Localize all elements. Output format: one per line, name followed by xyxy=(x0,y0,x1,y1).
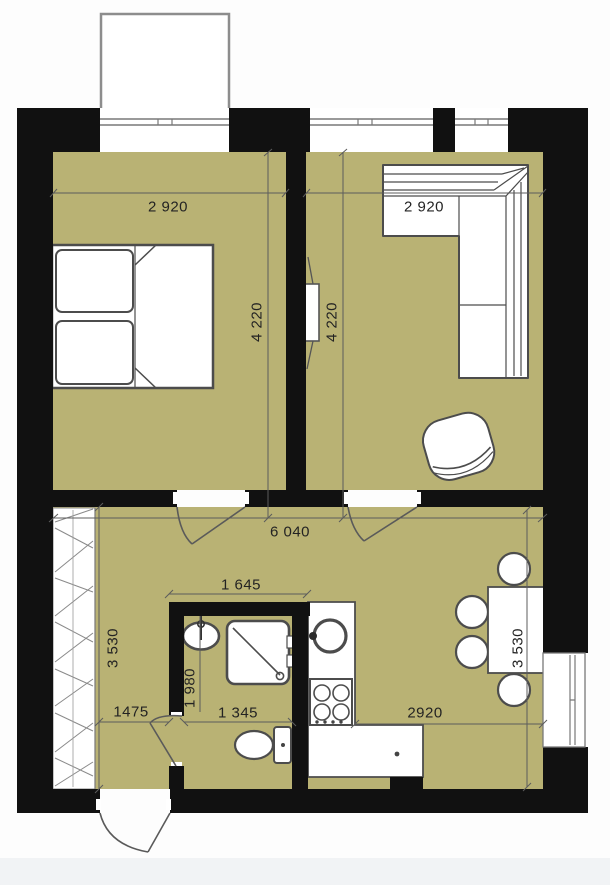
dim-bedroom-depth: 4 220 xyxy=(250,302,265,342)
entrance-door xyxy=(100,813,170,852)
dim-bathroom-depth: 1 980 xyxy=(183,668,198,708)
wardrobe xyxy=(53,508,95,789)
chair xyxy=(498,553,530,585)
chair xyxy=(456,636,488,668)
dim-hall-depth: 3 530 xyxy=(106,628,121,668)
double-bed xyxy=(52,245,213,388)
floor-plan: 2 920 2 920 4 220 4 220 6 040 3 530 1475… xyxy=(0,0,610,885)
kitchen-window xyxy=(543,653,585,747)
dim-kitchen-depth: 3 530 xyxy=(511,628,526,668)
toilet xyxy=(235,727,291,763)
bedroom-window xyxy=(100,108,229,152)
living-window-1 xyxy=(310,108,433,152)
page-footer-strip xyxy=(0,858,610,885)
balcony xyxy=(101,14,229,110)
living-window-2 xyxy=(455,108,508,152)
dim-living-width: 2 920 xyxy=(404,200,444,215)
dim-hall-passage: 1475 xyxy=(113,705,148,720)
chair xyxy=(498,674,530,706)
dim-bedroom-width: 2 920 xyxy=(148,200,188,215)
dim-living-depth: 4 220 xyxy=(325,302,340,342)
dim-kitchen-width: 2920 xyxy=(407,706,442,721)
chair xyxy=(456,596,488,628)
floor-plan-drawing xyxy=(0,0,610,885)
shower xyxy=(227,621,294,684)
dim-bathroom-width: 1 645 xyxy=(221,578,261,593)
dim-total-width: 6 040 xyxy=(270,525,310,540)
dim-bathroom-inner-width: 1 345 xyxy=(218,706,258,721)
